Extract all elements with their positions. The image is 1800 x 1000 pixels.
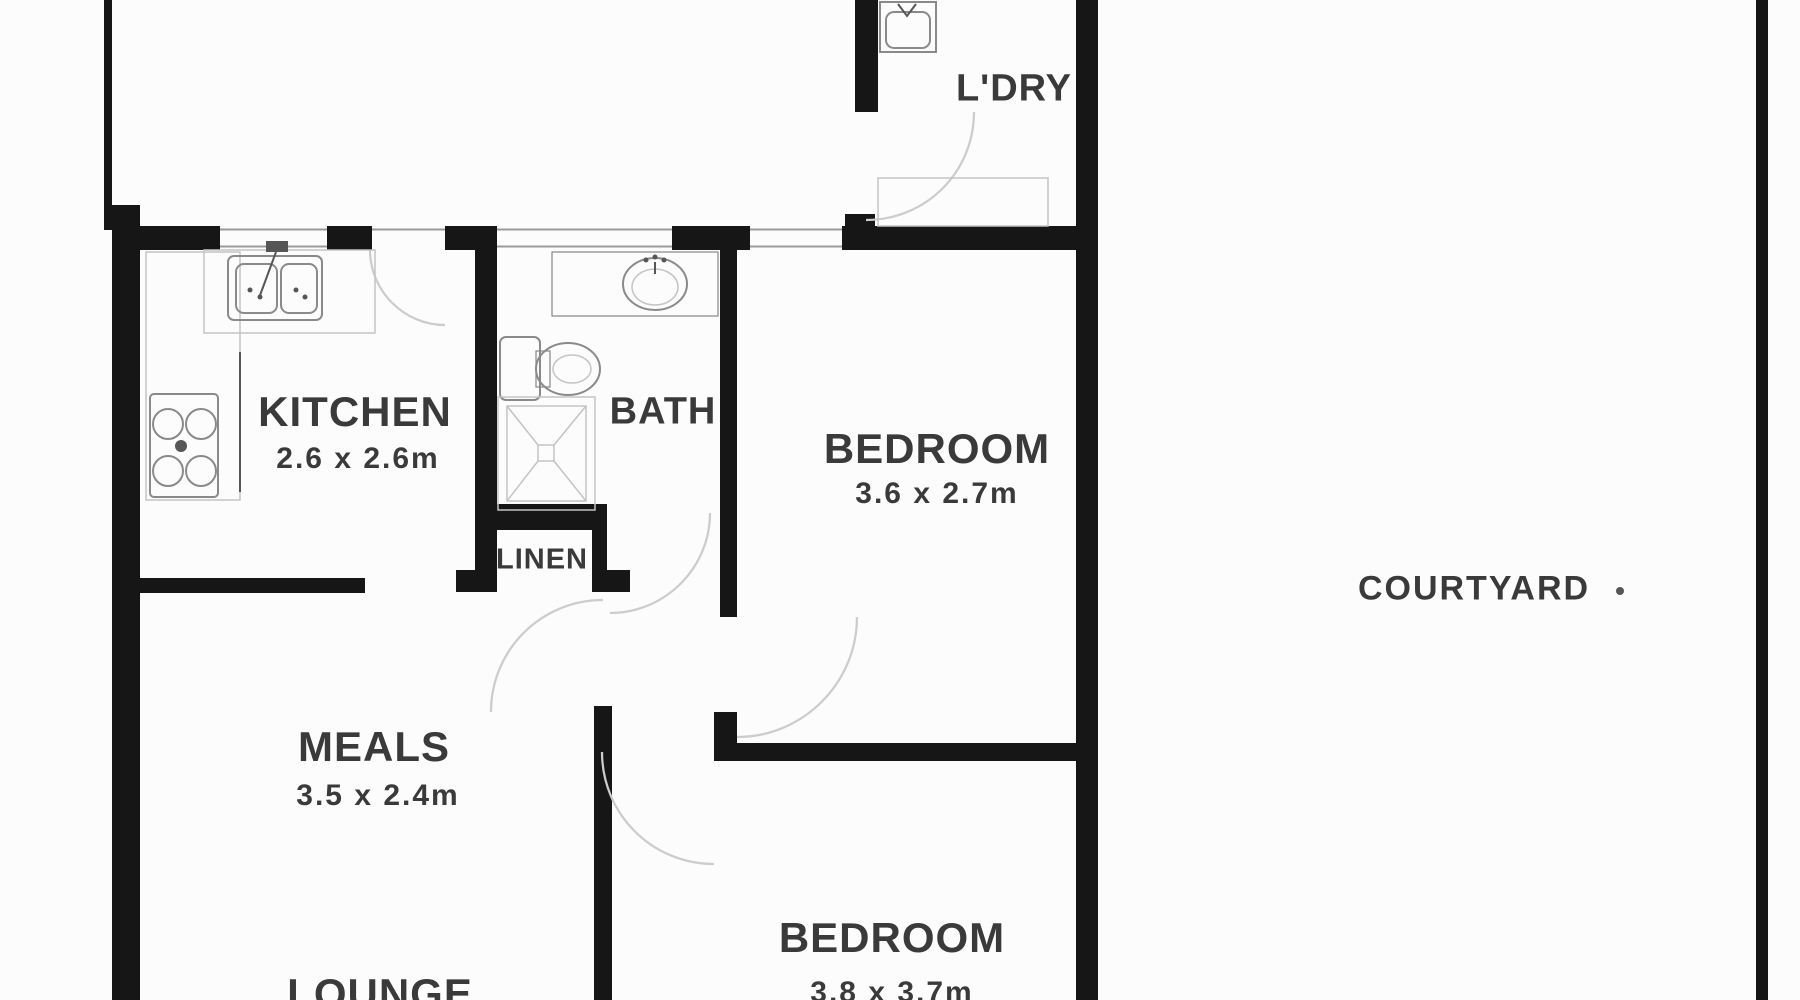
vanity-basin-icon xyxy=(552,252,718,316)
room-label-bedroom1: BEDROOM xyxy=(824,425,1050,473)
left-exterior-wall xyxy=(112,205,140,1000)
bedroom2-door-arc xyxy=(602,752,714,864)
room-label-linen: LINEN xyxy=(496,544,588,577)
kitchen-sink-icon xyxy=(228,241,322,320)
linen-door-jamb xyxy=(456,570,497,592)
linen-door-jamb xyxy=(592,570,630,592)
room-label-bath: BATH xyxy=(610,391,717,434)
bedroom1-door-arc xyxy=(737,617,857,737)
room-label-lounge: LOUNGE xyxy=(287,970,473,1000)
room-label-laundry: L'DRY xyxy=(956,68,1072,111)
stove-icon xyxy=(150,394,218,497)
room-dims-meals: 3.5 x 2.4m xyxy=(296,779,459,813)
shower-icon xyxy=(498,397,595,510)
kitchen-bath-divider-wall xyxy=(475,250,497,592)
toilet-icon xyxy=(500,337,600,400)
front-boundary-wall xyxy=(104,0,112,230)
room-label-kitchen: KITCHEN xyxy=(258,388,452,436)
room-dims-bedroom2: 3.8 x 3.7m xyxy=(810,976,973,1000)
bedroom2-door-jamb xyxy=(714,712,737,746)
top-wall-segment xyxy=(445,226,497,250)
floorplan: KITCHEN 2.6 x 2.6m BATH LINEN BEDROOM 3.… xyxy=(0,0,1800,1000)
linen-top-wall xyxy=(475,504,607,530)
room-dims-kitchen: 2.6 x 2.6m xyxy=(276,442,439,476)
room-label-courtyard: COURTYARD xyxy=(1358,570,1590,609)
courtyard-marker-dot xyxy=(1616,587,1624,595)
top-wall-segment xyxy=(327,226,372,250)
laundry-bench xyxy=(878,178,1048,226)
room-dims-bedroom1: 3.6 x 2.7m xyxy=(855,477,1018,511)
lounge-divider-wall xyxy=(594,706,612,1000)
kitchen-bottom-wall xyxy=(140,578,365,593)
bath-door-arc xyxy=(610,513,710,613)
bath-bedroom-divider-wall xyxy=(720,250,737,617)
kitchen-door-arc xyxy=(370,250,445,325)
laundry-left-wall xyxy=(855,0,878,112)
bedroom2-top-wall xyxy=(714,743,1093,761)
courtyard-boundary xyxy=(1616,0,1768,1000)
courtyard-fence-wall xyxy=(1756,0,1768,1000)
lounge-door-arc xyxy=(491,600,603,712)
right-exterior-wall xyxy=(1076,0,1098,1000)
laundry-tub-icon xyxy=(880,2,936,52)
top-wall-segment xyxy=(112,226,220,250)
laundry-door-arc xyxy=(866,112,974,220)
top-wall-segment xyxy=(842,226,1078,250)
top-wall-segment xyxy=(672,226,750,250)
room-label-bedroom2: BEDROOM xyxy=(779,914,1005,962)
kitchen-door-opening xyxy=(372,232,445,249)
room-label-meals: MEALS xyxy=(298,723,450,771)
